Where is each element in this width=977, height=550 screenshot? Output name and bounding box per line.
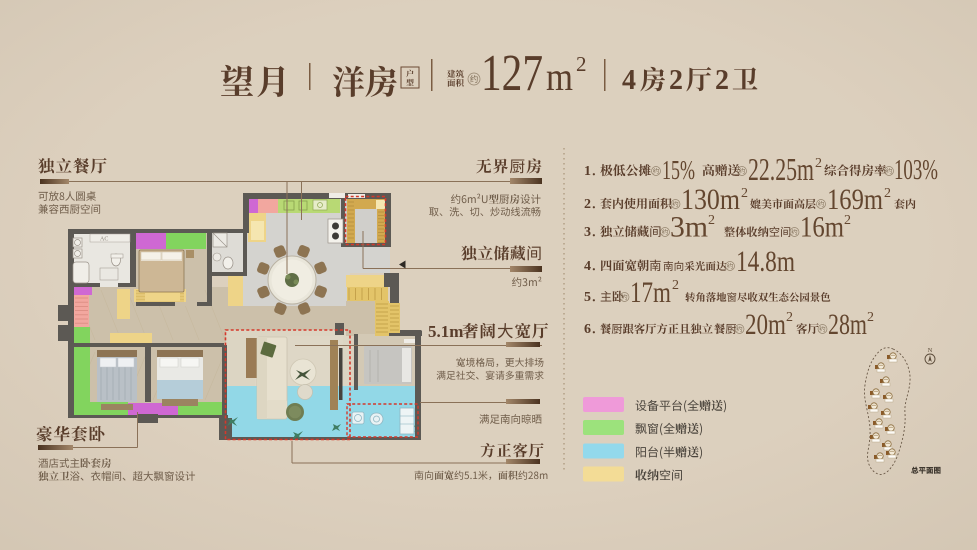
svg-text:2: 2: [708, 213, 715, 228]
svg-text:5: 5: [584, 290, 591, 305]
svg-text:3m: 3m: [670, 211, 708, 244]
svg-text:14.8m: 14.8m: [736, 245, 795, 278]
svg-text:m: m: [546, 54, 573, 99]
svg-text:20m: 20m: [745, 308, 786, 341]
svg-text:2: 2: [669, 65, 683, 96]
svg-text:1: 1: [584, 164, 591, 179]
svg-text:4: 4: [584, 259, 591, 274]
svg-text:15%: 15%: [662, 155, 695, 185]
svg-text:103%: 103%: [894, 154, 938, 186]
svg-text:127: 127: [481, 45, 543, 102]
svg-text:2: 2: [584, 197, 591, 212]
svg-text:AC: AC: [100, 237, 108, 243]
svg-text:17m: 17m: [630, 276, 671, 309]
svg-text:16m: 16m: [800, 211, 844, 244]
svg-text:2: 2: [884, 186, 891, 201]
svg-text:2: 2: [715, 65, 729, 96]
svg-text:22.25m: 22.25m: [748, 151, 814, 187]
svg-text:3: 3: [584, 225, 591, 240]
svg-text:N: N: [928, 347, 933, 354]
svg-text:2: 2: [815, 156, 822, 171]
svg-text:2: 2: [576, 52, 587, 76]
svg-text:2: 2: [786, 310, 793, 325]
svg-text:6: 6: [584, 322, 591, 337]
svg-text:28m: 28m: [828, 308, 867, 341]
svg-text:2: 2: [844, 213, 851, 228]
svg-text:4: 4: [622, 65, 636, 96]
svg-text:2: 2: [867, 310, 874, 325]
svg-text:2: 2: [672, 278, 679, 293]
svg-text:5.1m: 5.1m: [428, 322, 463, 341]
svg-text:2: 2: [741, 186, 748, 201]
